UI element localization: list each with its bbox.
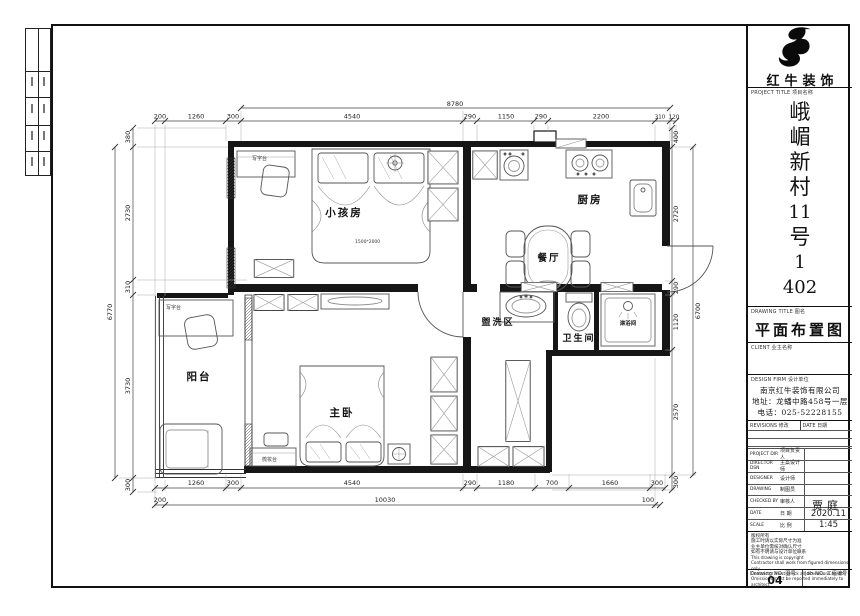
bull-logo-icon — [771, 26, 829, 68]
job-no-cell: Job NO. 工程编号 — [803, 570, 852, 586]
dim-left-overall: 6770 — [106, 304, 114, 321]
table-row: PROJECT DIR 项目负责人 — [748, 448, 852, 460]
table-row: DIRECTOR DSN 主案设计师 — [748, 460, 852, 472]
row-label-cn: 制图员 — [780, 486, 804, 493]
furniture-kitchen — [473, 139, 656, 216]
dim-right-overall: 6700 — [694, 303, 702, 320]
dim: 290 — [464, 479, 476, 487]
divider — [748, 306, 852, 307]
window — [227, 248, 235, 288]
dim: 1260 — [188, 479, 205, 487]
row-label-en: CHECKED BY — [748, 499, 780, 504]
project-name: 峨 嵋 新 村 11 号 1 402 — [748, 101, 852, 299]
firm-name: 南京红牛装饰有限公司 — [748, 385, 852, 396]
project-name-char: 嵋 — [790, 126, 811, 149]
furniture-balcony — [159, 300, 233, 474]
dim: 1180 — [498, 479, 515, 487]
room-label-shower: 淋浴间 — [620, 319, 637, 327]
row-value — [804, 449, 852, 460]
dim: 1150 — [498, 113, 515, 121]
revisions-label: REVISIONS 修改 — [748, 421, 801, 430]
balcony-glazing — [156, 296, 247, 478]
dim: 200 — [154, 113, 166, 121]
flue-duct — [534, 131, 556, 142]
dim: 380 — [124, 131, 132, 143]
design-firm-info: 南京红牛装饰有限公司 地址：龙蟠中路458号一层 电话：025-52228155 — [748, 385, 852, 418]
project-name-char: 11 — [789, 201, 812, 224]
master-bedroom-door — [418, 292, 463, 337]
firm-address: 地址：龙蟠中路458号一层 — [748, 396, 852, 407]
row-value: 1:45 — [804, 520, 852, 531]
furniture-master-bedroom — [250, 294, 457, 466]
dim: 100 — [642, 496, 654, 504]
dim: 4540 — [344, 479, 361, 487]
drawing-title-label: DRAWING TITLE 图名 — [748, 308, 852, 315]
dim: 300 — [124, 479, 132, 491]
date-col-label: DATE 日期 — [801, 421, 853, 430]
drawing-number-row: Drawing NO. 图号 04 Job NO. 工程编号 — [748, 569, 852, 586]
dim: 2570 — [672, 404, 680, 421]
bed-size-label: 1500*2000 — [355, 239, 380, 245]
row-label-en: DIRECTOR DSN — [748, 461, 780, 471]
dim: 2200 — [593, 113, 610, 121]
dim: 300 — [651, 479, 663, 487]
row-label-en: DRAWING — [748, 487, 780, 492]
project-name-char: 号 — [790, 226, 811, 249]
row-label-en: DESIGNER — [748, 476, 780, 481]
row-value — [804, 461, 852, 472]
table-row: SCALE 比 例 1:45 — [748, 519, 852, 531]
dim: 310 — [124, 281, 132, 293]
dim: 700 — [546, 479, 558, 487]
floor-plan: 小孩房 厨房 餐厅 盥洗区 卫生间 淋浴间 阳台 主卧 写字台 写字台 梳妆台 … — [0, 0, 860, 616]
dim: 300 — [672, 476, 680, 488]
desk-label: 写字台 — [252, 155, 267, 162]
job-no-label: Job NO. 工程编号 — [805, 570, 847, 577]
divider — [748, 342, 852, 343]
desk-label: 写字台 — [166, 304, 181, 311]
window — [245, 424, 252, 466]
drawing-sheet: 小孩房 厨房 餐厅 盥洗区 卫生间 淋浴间 阳台 主卧 写字台 写字台 梳妆台 … — [0, 0, 860, 616]
revisions-header: REVISIONS 修改 DATE 日期 — [748, 421, 852, 430]
project-name-char: 村 — [790, 176, 811, 199]
dimension-labels: 8780 200 1260 300 4540 290 1150 290 2200… — [106, 100, 702, 504]
dim: 200 — [154, 496, 166, 504]
designer-name: 贾庭 — [804, 493, 850, 517]
drawing-no-cell: Drawing NO. 图号 04 — [748, 570, 803, 586]
dim: 400 — [672, 131, 680, 143]
dim: 310 — [655, 115, 666, 121]
dimension-ticks — [112, 105, 696, 508]
personnel-table: PROJECT DIR 项目负责人 DIRECTOR DSN 主案设计师 DES… — [748, 448, 852, 531]
project-name-char: 402 — [783, 276, 817, 299]
project-name-char: 新 — [790, 151, 811, 174]
dim: 290 — [672, 282, 680, 294]
room-label-bathroom: 卫生间 — [562, 332, 595, 344]
title-block: 红牛装饰 PROJECT TITLE 项目名称 峨 嵋 新 村 11 号 1 4… — [746, 24, 852, 588]
dim: 1260 — [188, 113, 205, 121]
project-title-label: PROJECT TITLE 项目名称 — [748, 89, 852, 96]
revision-row — [748, 438, 852, 446]
table-row: DESIGNER 设计师 — [748, 472, 852, 484]
row-value — [804, 473, 852, 484]
furniture-hall-closets — [478, 361, 544, 467]
room-label-wash-area: 盥洗区 — [481, 316, 514, 328]
design-firm-label: DESIGN FIRM 设计单位 — [748, 376, 852, 383]
room-label-kitchen: 厨房 — [578, 193, 603, 206]
row-label-cn: 审核人 — [780, 498, 804, 505]
dim: 300 — [227, 113, 239, 121]
room-label-kids-room: 小孩房 — [324, 206, 363, 219]
dim: 1660 — [602, 479, 619, 487]
dim: 300 — [227, 479, 239, 487]
dim: 10030 — [375, 496, 396, 504]
project-name-char: 峨 — [790, 101, 811, 124]
company-logo — [748, 26, 852, 70]
row-label-cn: 比 例 — [780, 522, 804, 529]
project-name-char: 1 — [794, 251, 805, 274]
dresser-label: 梳妆台 — [262, 456, 277, 463]
window — [245, 298, 252, 340]
revision-row — [748, 430, 852, 438]
drawing-no-value: 04 — [748, 574, 802, 587]
extension-lines — [119, 111, 696, 508]
room-label-master-bedroom: 主卧 — [330, 406, 355, 419]
divider — [748, 374, 852, 375]
window — [227, 158, 235, 198]
dim: 120 — [669, 115, 680, 121]
room-label-balcony: 阳台 — [187, 370, 212, 383]
dim: 2730 — [124, 205, 132, 222]
room-label-dining: 餐厅 — [536, 252, 560, 264]
client-label: CLIENT 业主名称 — [748, 344, 852, 351]
row-label-en: DATE — [748, 511, 780, 516]
dim: 290 — [535, 113, 547, 121]
dim: 2720 — [672, 206, 680, 223]
row-label-cn: 日 期 — [780, 510, 804, 517]
divider — [748, 87, 852, 88]
dim: 290 — [464, 113, 476, 121]
drawing-title: 平面布置图 — [748, 319, 852, 340]
dim: 4540 — [344, 113, 361, 121]
dim: 3730 — [124, 378, 132, 395]
row-label-cn: 设计师 — [780, 475, 804, 482]
dim-top-overall: 8780 — [447, 100, 464, 108]
firm-phone: 电话：025-52228155 — [748, 407, 852, 418]
row-label-en: SCALE — [748, 523, 780, 528]
row-label-en: PROJECT DIR — [748, 452, 780, 457]
dim: 1120 — [672, 314, 680, 331]
